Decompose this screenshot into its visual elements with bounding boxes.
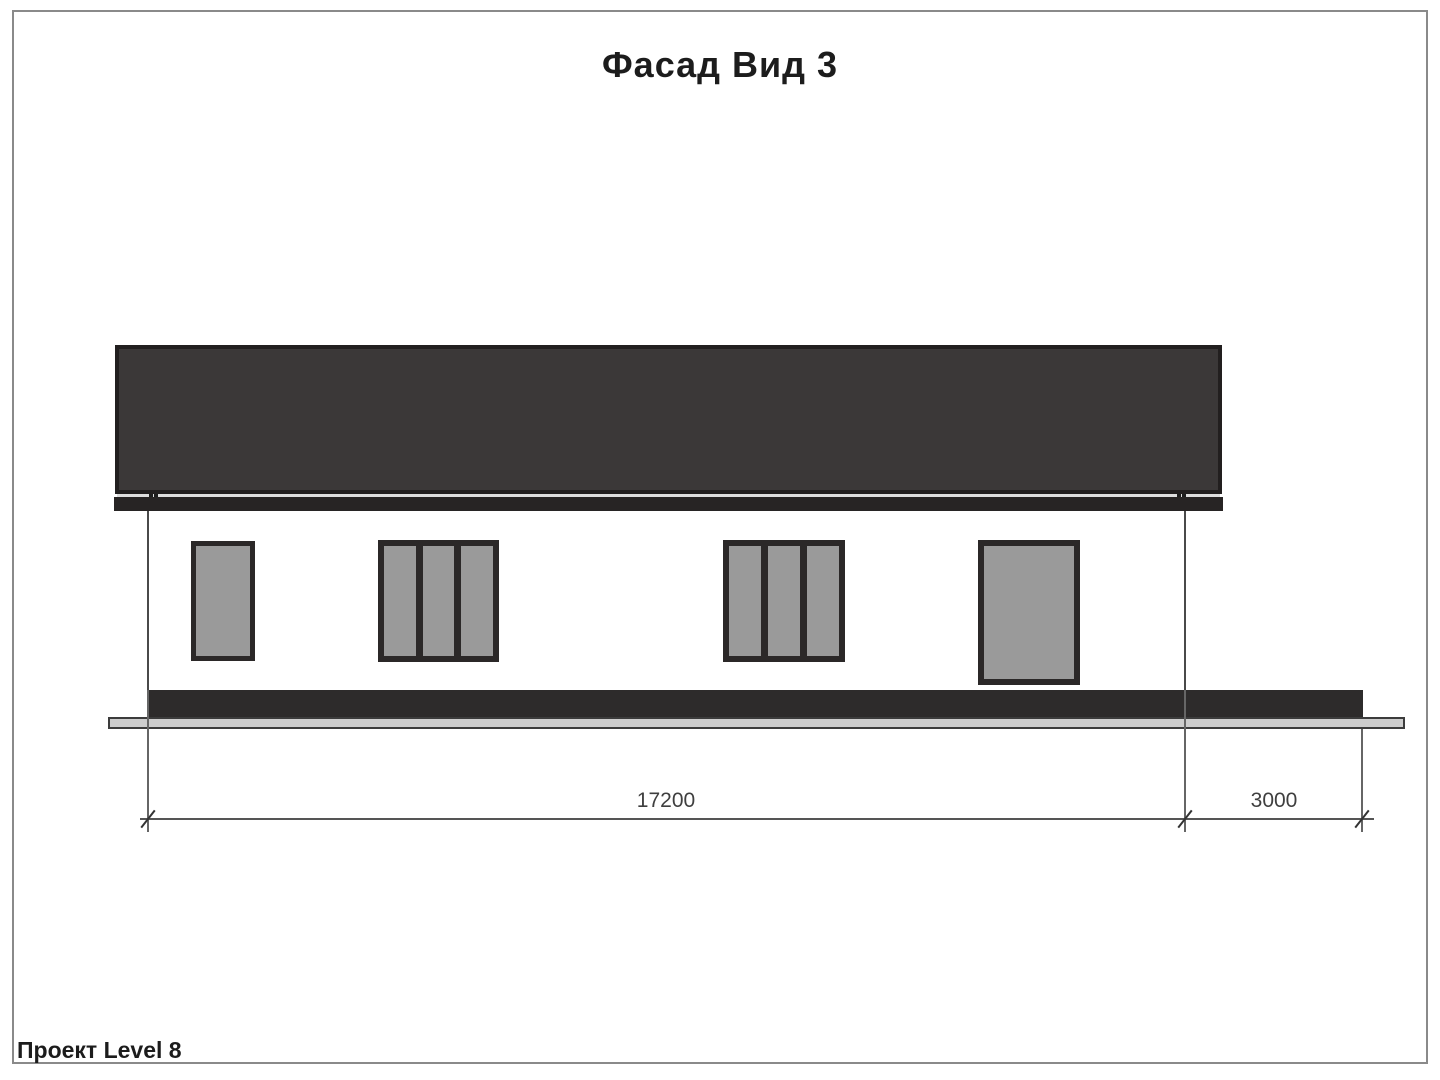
window-pane: [423, 546, 455, 656]
window-pane: [768, 546, 800, 656]
wall-right-edge: [1184, 511, 1186, 690]
page-border: [12, 10, 1428, 1064]
window-pane: [384, 546, 416, 656]
wall-left-edge: [147, 511, 149, 690]
roof: [115, 345, 1222, 494]
extension-line-middle: [1184, 690, 1186, 832]
dimension-label-terrace-width: 3000: [1194, 789, 1354, 813]
drawing-sheet: Фасад Вид 3 17200 3000 Проект Level 8: [0, 0, 1440, 1080]
drawing-title: Фасад Вид 3: [0, 44, 1440, 86]
window-triple-left: [378, 540, 499, 662]
window-pane: [461, 546, 493, 656]
window-pane: [807, 546, 839, 656]
window-single-left: [191, 541, 255, 661]
plinth: [148, 690, 1363, 717]
dimension-line: [140, 818, 1374, 820]
window-large-right: [978, 540, 1080, 685]
dimension-label-building-width: 17200: [586, 789, 746, 813]
extension-line-left: [147, 690, 149, 832]
window-pane: [196, 546, 250, 656]
window-pane: [984, 546, 1074, 679]
project-label: Проект Level 8: [17, 1037, 182, 1064]
window-pane: [729, 546, 761, 656]
ground-slab: [108, 717, 1405, 729]
window-triple-right: [723, 540, 845, 662]
roof-fascia: [114, 497, 1223, 511]
